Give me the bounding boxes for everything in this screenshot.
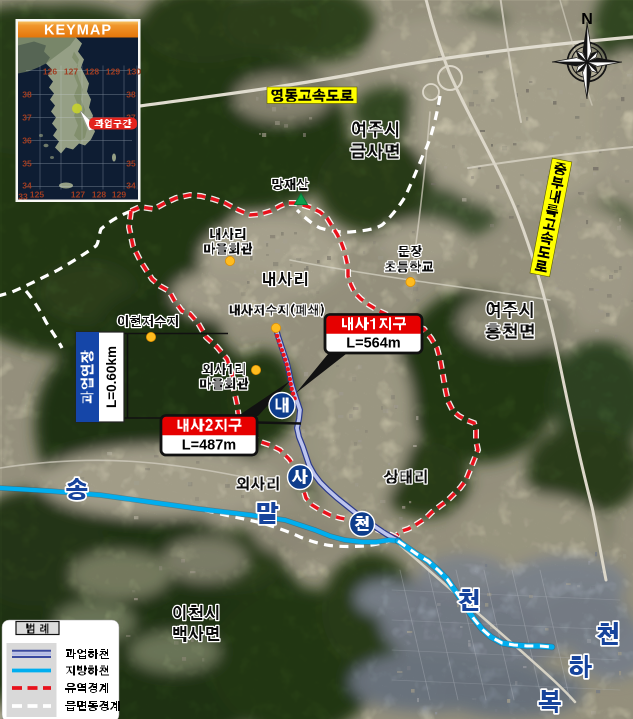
svg-text:129: 129 — [106, 67, 120, 77]
svg-text:L=564m: L=564m — [346, 336, 400, 352]
svg-text:130: 130 — [127, 67, 141, 77]
svg-text:L=0.60km: L=0.60km — [104, 346, 119, 408]
svg-text:35: 35 — [126, 159, 136, 169]
svg-text:35: 35 — [22, 159, 32, 169]
svg-text:127: 127 — [64, 67, 78, 77]
svg-text:34: 34 — [22, 181, 32, 191]
svg-text:38: 38 — [22, 90, 32, 100]
svg-text:38: 38 — [126, 90, 136, 100]
svg-text:36: 36 — [22, 136, 32, 146]
svg-text:33: 33 — [18, 192, 28, 202]
svg-text:126: 126 — [43, 67, 57, 77]
svg-text:N: N — [581, 11, 593, 28]
svg-text:128: 128 — [92, 190, 106, 200]
svg-text:KEYMAP: KEYMAP — [44, 23, 112, 39]
svg-text:129: 129 — [112, 190, 126, 200]
svg-text:127: 127 — [71, 190, 85, 200]
svg-text:125: 125 — [30, 190, 44, 200]
svg-text:37: 37 — [22, 113, 32, 123]
svg-text:128: 128 — [85, 67, 99, 77]
svg-text:L=487m: L=487m — [182, 438, 236, 454]
svg-text:34: 34 — [126, 181, 136, 191]
